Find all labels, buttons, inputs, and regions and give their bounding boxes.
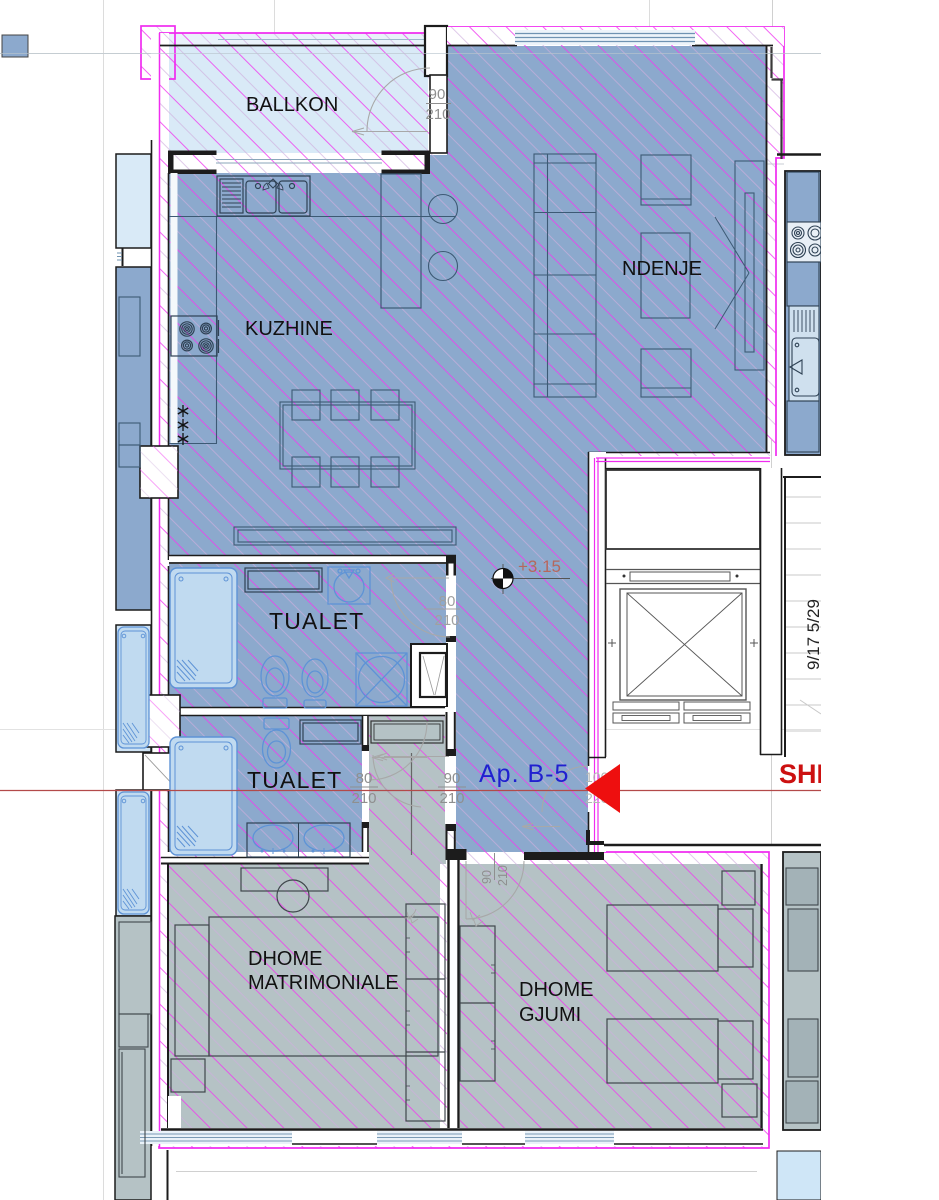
svg-text:GJUMI: GJUMI xyxy=(519,1004,581,1026)
svg-text:TUALET: TUALET xyxy=(269,608,364,634)
svg-text:210: 210 xyxy=(496,865,510,886)
svg-text:80: 80 xyxy=(439,593,456,610)
svg-text:NDENJE: NDENJE xyxy=(622,258,702,280)
svg-text:DHOME: DHOME xyxy=(519,979,593,1001)
svg-text:BALLKON: BALLKON xyxy=(246,94,338,116)
svg-text:DHOME: DHOME xyxy=(248,948,322,970)
svg-text:KUZHINE: KUZHINE xyxy=(245,318,333,340)
svg-text:210: 210 xyxy=(439,790,464,807)
svg-text:+3.15: +3.15 xyxy=(518,557,561,576)
svg-text:MATRIMONIALE: MATRIMONIALE xyxy=(248,972,399,994)
svg-text:210: 210 xyxy=(425,106,450,123)
svg-text:9/17 5/29: 9/17 5/29 xyxy=(804,599,823,670)
svg-text:90: 90 xyxy=(444,770,461,787)
svg-text:210: 210 xyxy=(434,612,459,629)
svg-text:210: 210 xyxy=(351,790,376,807)
svg-text:90: 90 xyxy=(429,86,446,103)
svg-text:Ap. B-5: Ap. B-5 xyxy=(479,760,569,788)
svg-text:TUALET: TUALET xyxy=(247,767,342,793)
svg-text:90: 90 xyxy=(480,870,494,884)
svg-text:80: 80 xyxy=(356,770,373,787)
